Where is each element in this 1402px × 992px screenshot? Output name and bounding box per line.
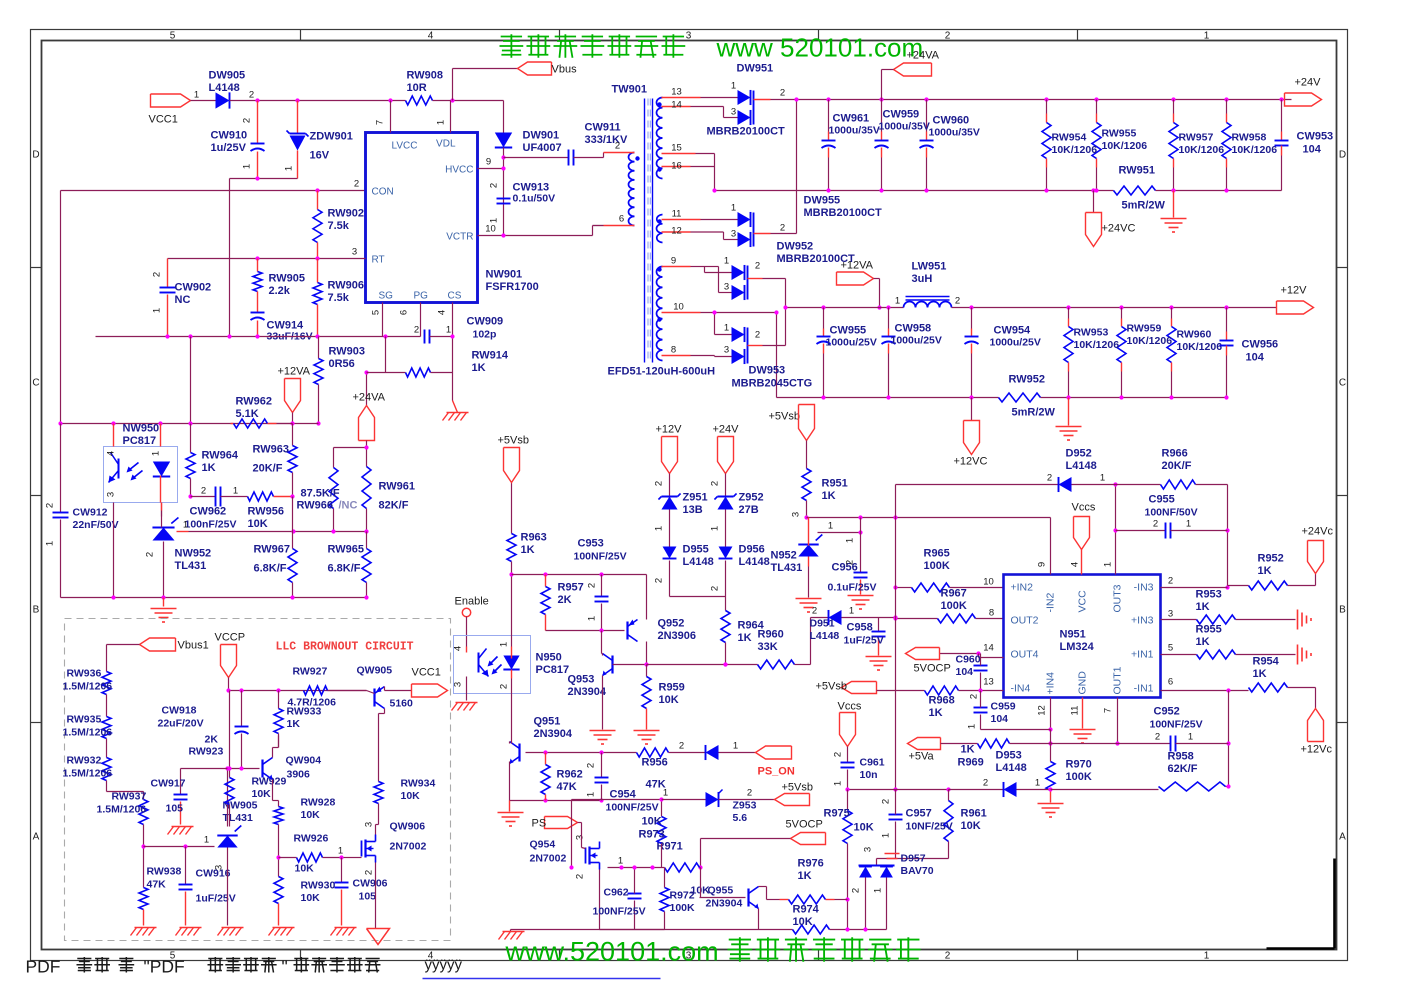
svg-text:CS: CS xyxy=(448,291,462,302)
svg-text:1: 1 xyxy=(587,616,598,621)
svg-text:2N3904: 2N3904 xyxy=(706,898,743,910)
svg-text:C960: C960 xyxy=(956,654,981,666)
svg-text:1u/25V: 1u/25V xyxy=(211,142,247,154)
svg-text:CW960: CW960 xyxy=(933,115,970,127)
svg-text:1K: 1K xyxy=(738,632,752,644)
svg-text:B: B xyxy=(33,605,40,616)
svg-text:1: 1 xyxy=(242,164,253,169)
svg-text:RW905: RW905 xyxy=(269,273,305,285)
svg-text:100K: 100K xyxy=(670,902,696,914)
svg-text:2: 2 xyxy=(1155,732,1160,743)
svg-text:2K: 2K xyxy=(558,594,572,606)
svg-text:PS: PS xyxy=(532,818,547,830)
svg-text:+IN3: +IN3 xyxy=(1131,615,1154,627)
svg-text:SG: SG xyxy=(379,291,394,302)
svg-text:A: A xyxy=(1339,832,1346,843)
svg-text:+24VA: +24VA xyxy=(907,50,940,62)
svg-text:1: 1 xyxy=(1035,778,1040,789)
svg-text:L4148: L4148 xyxy=(683,556,714,568)
svg-text:R951: R951 xyxy=(822,478,848,490)
svg-text:R952: R952 xyxy=(1258,553,1284,565)
svg-text:"PDF: "PDF xyxy=(144,957,185,977)
svg-text:1: 1 xyxy=(731,203,736,214)
svg-text:13: 13 xyxy=(983,677,994,688)
svg-text:12: 12 xyxy=(1037,705,1048,716)
svg-text:VCCP: VCCP xyxy=(215,632,246,644)
svg-text:3906: 3906 xyxy=(287,769,311,781)
svg-text:VCTR: VCTR xyxy=(446,232,473,243)
svg-text:2: 2 xyxy=(780,223,785,234)
svg-text:L4148: L4148 xyxy=(996,762,1027,774)
svg-text:3: 3 xyxy=(791,512,802,517)
svg-text:1: 1 xyxy=(152,308,163,313)
svg-text:RW906: RW906 xyxy=(328,280,364,292)
svg-text:1K: 1K xyxy=(1253,668,1267,680)
svg-text:10K: 10K xyxy=(248,518,268,530)
svg-text:5VOCP: 5VOCP xyxy=(786,819,823,831)
svg-text:7.5k: 7.5k xyxy=(328,220,350,232)
svg-text:VDL: VDL xyxy=(436,139,456,150)
svg-text:CW961: CW961 xyxy=(833,113,870,125)
svg-text:10K: 10K xyxy=(252,788,272,800)
svg-text:10K: 10K xyxy=(854,822,874,834)
svg-text:RT: RT xyxy=(372,255,385,266)
svg-text:10K/1206: 10K/1206 xyxy=(1179,144,1225,156)
svg-text:104: 104 xyxy=(1246,352,1265,364)
svg-text:1: 1 xyxy=(724,323,729,334)
svg-text:2: 2 xyxy=(812,606,817,617)
svg-text:1: 1 xyxy=(895,296,900,307)
svg-text:3: 3 xyxy=(575,835,586,840)
svg-text:1K: 1K xyxy=(1196,601,1210,613)
svg-text:EFD51-120uH-600uH: EFD51-120uH-600uH xyxy=(608,366,716,378)
svg-text:10: 10 xyxy=(485,224,496,235)
svg-text:2: 2 xyxy=(249,90,254,101)
svg-text:RW958: RW958 xyxy=(1232,132,1267,144)
svg-text:D953: D953 xyxy=(996,750,1022,762)
svg-text:VCC1: VCC1 xyxy=(412,667,441,679)
svg-text:1: 1 xyxy=(733,741,738,752)
svg-text:1: 1 xyxy=(1204,951,1210,962)
svg-text:2: 2 xyxy=(201,486,206,497)
svg-text:100NF/25V: 100NF/25V xyxy=(606,802,659,814)
svg-text:3: 3 xyxy=(1168,609,1173,620)
svg-text:RW938: RW938 xyxy=(147,866,182,878)
svg-text:RW955: RW955 xyxy=(1102,128,1137,140)
svg-text:2K: 2K xyxy=(205,734,219,746)
svg-text:5: 5 xyxy=(1168,643,1173,654)
svg-text:C: C xyxy=(32,378,39,389)
svg-text:R973: R973 xyxy=(639,829,665,841)
svg-text:20K/F: 20K/F xyxy=(253,463,283,475)
svg-text:5: 5 xyxy=(371,310,382,315)
svg-text:104: 104 xyxy=(1303,144,1322,156)
svg-text:R974: R974 xyxy=(793,904,820,916)
svg-text:RW928: RW928 xyxy=(301,797,336,809)
svg-text:1.5M/1206: 1.5M/1206 xyxy=(63,681,113,693)
svg-text:11: 11 xyxy=(1070,706,1081,716)
svg-text:NW952: NW952 xyxy=(175,548,212,560)
svg-text:8: 8 xyxy=(671,345,676,356)
svg-text:10K: 10K xyxy=(401,790,421,802)
svg-text:0.1u/50V: 0.1u/50V xyxy=(513,193,556,205)
svg-text:100nF/25V: 100nF/25V xyxy=(185,519,237,531)
svg-text:2: 2 xyxy=(945,31,951,42)
svg-text:RW965: RW965 xyxy=(328,544,364,556)
svg-text:3uH: 3uH xyxy=(912,273,933,285)
svg-text:OUT3: OUT3 xyxy=(1112,584,1124,612)
svg-text:7: 7 xyxy=(1103,708,1114,713)
svg-text:3: 3 xyxy=(724,282,729,293)
svg-text:D: D xyxy=(32,150,39,161)
svg-text:0R56: 0R56 xyxy=(329,358,355,370)
svg-text:OUT2: OUT2 xyxy=(1011,615,1039,627)
svg-text:CW918: CW918 xyxy=(162,705,197,717)
svg-text:PDF: PDF xyxy=(26,957,61,977)
svg-text:1K: 1K xyxy=(929,707,943,719)
svg-text:R966: R966 xyxy=(1162,448,1188,460)
svg-text:1: 1 xyxy=(194,90,199,101)
svg-text:16: 16 xyxy=(671,161,682,172)
svg-text:4: 4 xyxy=(428,31,434,42)
svg-text:Enable: Enable xyxy=(455,596,489,608)
svg-text:5.1K: 5.1K xyxy=(236,408,259,420)
svg-text:RW961: RW961 xyxy=(379,481,415,493)
svg-text:1: 1 xyxy=(183,520,188,531)
svg-text:10K: 10K xyxy=(659,694,679,706)
svg-text:12: 12 xyxy=(671,226,682,237)
svg-text:1: 1 xyxy=(828,521,833,532)
svg-text:0.1uF/25V: 0.1uF/25V xyxy=(828,582,877,594)
svg-text:1000u/35V: 1000u/35V xyxy=(829,125,880,137)
svg-text:www.520101.com: www.520101.com xyxy=(505,937,719,967)
svg-text:C955: C955 xyxy=(1149,494,1175,506)
svg-text:13B: 13B xyxy=(683,504,703,516)
svg-text:2: 2 xyxy=(1153,519,1158,530)
svg-text:BAV70: BAV70 xyxy=(901,865,934,877)
svg-text:R961: R961 xyxy=(961,808,987,820)
svg-text:1: 1 xyxy=(833,781,844,786)
svg-text:2: 2 xyxy=(654,578,665,583)
svg-text:Z951: Z951 xyxy=(683,492,708,504)
svg-text:+5Va: +5Va xyxy=(909,751,935,763)
svg-text:5mR/2W: 5mR/2W xyxy=(1122,200,1166,212)
svg-text:RW903: RW903 xyxy=(329,346,365,358)
svg-text:R970: R970 xyxy=(1066,759,1092,771)
svg-text:1K: 1K xyxy=(472,362,486,374)
svg-text:Q953: Q953 xyxy=(568,674,595,686)
svg-text:RW957: RW957 xyxy=(1179,132,1214,144)
svg-text:6.8K/F: 6.8K/F xyxy=(328,563,361,575)
svg-text:PG: PG xyxy=(414,291,429,302)
svg-text:1: 1 xyxy=(1103,562,1114,567)
svg-text:5VOCP: 5VOCP xyxy=(914,663,951,675)
svg-text:2: 2 xyxy=(1047,473,1052,484)
svg-text:B: B xyxy=(1339,605,1346,616)
svg-text:D955: D955 xyxy=(683,544,709,556)
svg-text:+24V: +24V xyxy=(1295,77,1322,89)
svg-text:1: 1 xyxy=(724,256,729,267)
svg-text:RW956: RW956 xyxy=(248,506,284,518)
svg-text:RW960: RW960 xyxy=(1177,329,1212,341)
svg-text:100NF/25V: 100NF/25V xyxy=(593,906,646,918)
svg-text:RW933: RW933 xyxy=(287,706,322,718)
svg-text:3: 3 xyxy=(686,31,692,42)
svg-text:CW962: CW962 xyxy=(190,506,227,518)
svg-text:1: 1 xyxy=(873,888,884,893)
svg-text:11: 11 xyxy=(672,209,682,220)
svg-text:UF4007: UF4007 xyxy=(523,142,562,154)
svg-text:R953: R953 xyxy=(1196,589,1222,601)
svg-text:CW956: CW956 xyxy=(1242,339,1279,351)
svg-text:-IN4: -IN4 xyxy=(1011,683,1031,695)
svg-text:C962: C962 xyxy=(604,887,629,899)
svg-text:10NF/25V: 10NF/25V xyxy=(906,821,953,833)
svg-text:10: 10 xyxy=(983,577,994,588)
svg-text:10R: 10R xyxy=(407,82,427,94)
svg-text:10K/1206: 10K/1206 xyxy=(1177,341,1223,353)
svg-text:R959: R959 xyxy=(659,682,685,694)
svg-text:+24VC: +24VC xyxy=(1102,223,1136,235)
svg-text:2: 2 xyxy=(414,325,419,336)
svg-text:2: 2 xyxy=(575,874,586,879)
svg-text:L4148: L4148 xyxy=(810,630,840,642)
svg-text:1: 1 xyxy=(710,526,721,531)
svg-text:RW959: RW959 xyxy=(1127,323,1162,335)
svg-text:2: 2 xyxy=(242,118,253,123)
svg-text:+12V: +12V xyxy=(656,424,683,436)
svg-text:+12VA: +12VA xyxy=(278,366,311,378)
svg-text:ZDW901: ZDW901 xyxy=(310,131,353,143)
svg-text:2: 2 xyxy=(747,788,752,799)
svg-text:2N7002: 2N7002 xyxy=(390,841,427,853)
svg-text:3: 3 xyxy=(731,229,736,240)
svg-text:2: 2 xyxy=(755,261,760,272)
svg-text:2: 2 xyxy=(152,272,163,277)
svg-text:3: 3 xyxy=(453,682,464,687)
svg-text:D952: D952 xyxy=(1066,448,1092,460)
svg-text:2: 2 xyxy=(587,583,598,588)
svg-text:RW952: RW952 xyxy=(1009,374,1045,386)
svg-text:R954: R954 xyxy=(1253,656,1280,668)
svg-text:10K: 10K xyxy=(961,820,981,832)
svg-text:333/1KV: 333/1KV xyxy=(585,134,628,146)
svg-text:CW917: CW917 xyxy=(151,778,186,790)
svg-text:RW930: RW930 xyxy=(301,880,336,892)
svg-text:CW912: CW912 xyxy=(73,507,108,519)
svg-text:TL431: TL431 xyxy=(175,560,207,572)
svg-text:5160: 5160 xyxy=(390,698,414,710)
svg-text:47K: 47K xyxy=(147,879,167,891)
svg-text:C957: C957 xyxy=(906,808,932,820)
svg-text:LLC BROWNOUT CIRCUIT: LLC BROWNOUT CIRCUIT xyxy=(276,641,414,654)
svg-text:15: 15 xyxy=(671,143,682,154)
svg-text:1: 1 xyxy=(1100,473,1105,484)
svg-text:6: 6 xyxy=(399,310,410,315)
svg-text:9: 9 xyxy=(671,256,676,267)
svg-text:+5Vsb: +5Vsb xyxy=(769,411,801,423)
svg-text:2: 2 xyxy=(881,799,892,804)
svg-text:Q955: Q955 xyxy=(708,885,734,897)
svg-text:2: 2 xyxy=(969,694,980,699)
svg-text:Q954: Q954 xyxy=(530,839,556,851)
svg-text:RW908: RW908 xyxy=(407,70,443,82)
svg-text:GND: GND xyxy=(1077,671,1089,695)
svg-text:100NF/50V: 100NF/50V xyxy=(1145,507,1198,519)
svg-text:1K: 1K xyxy=(1258,565,1272,577)
svg-text:NC: NC xyxy=(175,294,191,306)
svg-text:DW955: DW955 xyxy=(804,195,841,207)
svg-text:RW914: RW914 xyxy=(472,350,509,362)
svg-text:10K/1206: 10K/1206 xyxy=(1127,335,1173,347)
svg-text:R968: R968 xyxy=(929,695,955,707)
svg-text:1K: 1K xyxy=(1196,636,1210,648)
svg-text:RW937: RW937 xyxy=(112,791,147,803)
svg-text:PS_ON: PS_ON xyxy=(758,766,795,778)
svg-text:R976: R976 xyxy=(798,858,824,870)
svg-text:R955: R955 xyxy=(1196,624,1222,636)
svg-text:TL431: TL431 xyxy=(771,562,803,574)
svg-text:C953: C953 xyxy=(578,538,604,550)
svg-text:3: 3 xyxy=(863,847,874,852)
svg-text:Q951: Q951 xyxy=(534,716,561,728)
svg-text:+12Vc: +12Vc xyxy=(1301,744,1333,756)
svg-text:+IN4: +IN4 xyxy=(1045,672,1057,695)
svg-text:RW923: RW923 xyxy=(189,746,224,758)
svg-text:CW910: CW910 xyxy=(211,130,248,142)
svg-text:RW967: RW967 xyxy=(254,544,290,556)
svg-text:14: 14 xyxy=(983,643,994,654)
svg-text:10: 10 xyxy=(673,302,684,313)
svg-text:L4148: L4148 xyxy=(1066,460,1097,472)
svg-text:2: 2 xyxy=(45,503,56,508)
svg-text:-IN2: -IN2 xyxy=(1045,593,1057,613)
svg-text:5.6: 5.6 xyxy=(733,812,748,824)
svg-text:www 520101.com: www 520101.com xyxy=(716,33,924,63)
svg-text:1: 1 xyxy=(338,846,343,857)
svg-text:C961: C961 xyxy=(860,757,885,769)
svg-text:CW906: CW906 xyxy=(353,878,388,890)
svg-text:CW911: CW911 xyxy=(585,122,621,134)
svg-text:R957: R957 xyxy=(558,582,584,594)
svg-text:Vbus: Vbus xyxy=(552,64,578,76)
svg-text:RW934: RW934 xyxy=(401,778,436,790)
svg-text:R967: R967 xyxy=(941,588,967,600)
svg-text:Z953: Z953 xyxy=(733,800,757,812)
svg-text:NW950: NW950 xyxy=(123,423,160,435)
svg-text:R975: R975 xyxy=(824,808,850,820)
svg-text:10K/1206: 10K/1206 xyxy=(1074,339,1120,351)
svg-text:QW904: QW904 xyxy=(286,755,322,767)
svg-text:CW953: CW953 xyxy=(1297,131,1334,143)
svg-text:1000u/25V: 1000u/25V xyxy=(826,337,877,349)
svg-text:100K: 100K xyxy=(1066,771,1092,783)
svg-text:D: D xyxy=(1339,150,1346,161)
svg-text:10K: 10K xyxy=(301,892,321,904)
svg-text:9: 9 xyxy=(1037,562,1048,567)
svg-text:1: 1 xyxy=(849,606,854,617)
svg-text:+IN1: +IN1 xyxy=(1131,649,1154,661)
svg-text:D956: D956 xyxy=(739,544,765,556)
svg-text:100NF/25V: 100NF/25V xyxy=(574,551,627,563)
svg-text:2: 2 xyxy=(654,481,665,486)
svg-text:1: 1 xyxy=(586,792,597,797)
svg-text:1: 1 xyxy=(284,166,295,171)
svg-text:MBRB20100CT: MBRB20100CT xyxy=(707,126,786,138)
svg-text:RW935: RW935 xyxy=(67,714,102,726)
svg-text:QW905: QW905 xyxy=(357,665,393,677)
svg-text:1: 1 xyxy=(45,541,56,546)
svg-text:R960: R960 xyxy=(758,629,784,641)
svg-text:RW963: RW963 xyxy=(253,444,289,456)
svg-text:ÿÿÿÿÿ: ÿÿÿÿÿ xyxy=(425,957,463,974)
svg-text:1: 1 xyxy=(1188,732,1193,743)
svg-text:1K: 1K xyxy=(287,718,301,730)
svg-text:1.5M/1206: 1.5M/1206 xyxy=(63,727,113,739)
svg-text:+5Vsb: +5Vsb xyxy=(816,681,848,693)
svg-text:RW932: RW932 xyxy=(67,755,102,767)
svg-text:NW901: NW901 xyxy=(486,269,523,281)
svg-text:104: 104 xyxy=(956,666,974,678)
svg-text:1: 1 xyxy=(204,835,209,846)
svg-text:HVCC: HVCC xyxy=(445,165,473,176)
svg-text:C: C xyxy=(1339,378,1346,389)
svg-text:1000u/25V: 1000u/25V xyxy=(891,335,942,347)
svg-text:2: 2 xyxy=(679,741,684,752)
svg-text:+12V: +12V xyxy=(1281,285,1308,297)
svg-text:3: 3 xyxy=(364,822,375,827)
svg-text:2: 2 xyxy=(833,752,844,757)
svg-text:1K: 1K xyxy=(521,544,535,556)
svg-text:2: 2 xyxy=(780,88,785,99)
svg-text:RW954: RW954 xyxy=(1052,132,1087,144)
svg-text:10K: 10K xyxy=(301,809,321,821)
svg-text:8: 8 xyxy=(989,608,994,619)
svg-text:CON: CON xyxy=(372,187,394,198)
svg-text:FSFR1700: FSFR1700 xyxy=(486,281,539,293)
svg-text:+24V: +24V xyxy=(713,424,740,436)
svg-text:1: 1 xyxy=(1204,31,1210,42)
svg-text:RW936: RW936 xyxy=(67,668,102,680)
svg-text:2N3904: 2N3904 xyxy=(568,686,607,698)
svg-text:1: 1 xyxy=(151,451,162,456)
svg-text:1K: 1K xyxy=(822,490,836,502)
svg-text:OUT1: OUT1 xyxy=(1112,666,1124,694)
svg-text:62K/F: 62K/F xyxy=(1168,763,1198,775)
svg-text:PC817: PC817 xyxy=(123,435,157,447)
svg-text:2: 2 xyxy=(489,183,500,188)
svg-text:C954: C954 xyxy=(610,789,637,801)
svg-text:N950: N950 xyxy=(536,652,562,664)
svg-text:VCC: VCC xyxy=(1077,590,1089,613)
svg-text:10K/1206: 10K/1206 xyxy=(1052,144,1098,156)
svg-text:CW909: CW909 xyxy=(467,316,504,328)
svg-text:4: 4 xyxy=(106,451,117,456)
svg-text:L4148: L4148 xyxy=(209,82,240,94)
svg-text:10n: 10n xyxy=(860,769,878,781)
svg-text:DW901: DW901 xyxy=(523,130,560,142)
svg-text:1: 1 xyxy=(446,325,451,336)
svg-text:2: 2 xyxy=(364,870,375,875)
svg-text:1000u/25V: 1000u/25V xyxy=(990,337,1041,349)
svg-text:1000u/35V: 1000u/35V xyxy=(929,127,980,139)
svg-text:1: 1 xyxy=(731,81,736,92)
svg-text:10K: 10K xyxy=(642,816,662,828)
svg-text:13: 13 xyxy=(671,87,682,98)
svg-text:1: 1 xyxy=(489,218,500,223)
svg-text:RW902: RW902 xyxy=(328,208,364,220)
svg-text:6.8K/F: 6.8K/F xyxy=(254,563,287,575)
